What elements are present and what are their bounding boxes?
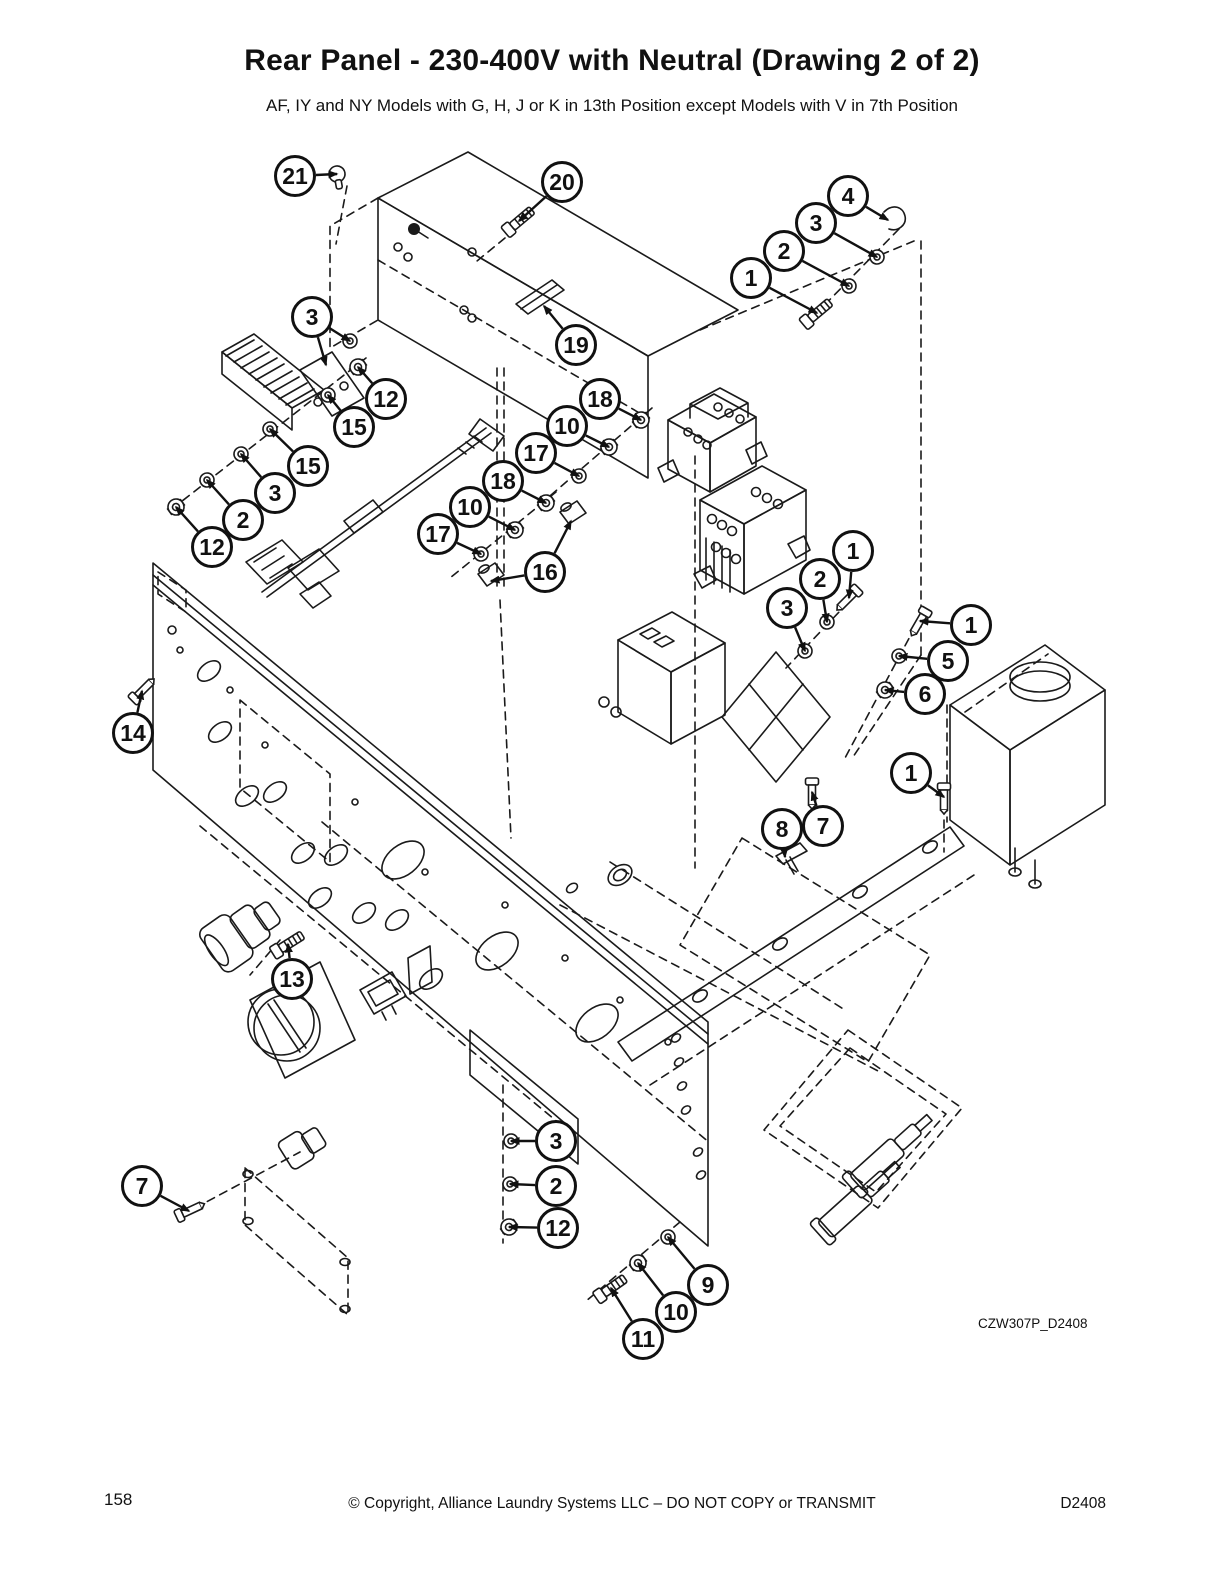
rotary-switch [248, 962, 355, 1078]
wire-harness [246, 419, 504, 608]
part-screw [128, 674, 159, 705]
access-plate [722, 652, 830, 782]
doc-code: D2408 [1060, 1495, 1106, 1513]
circuit-breaker [599, 612, 725, 744]
retainer-clip [776, 843, 807, 874]
projection-lines-mid [450, 368, 695, 868]
support-rail [618, 827, 974, 1085]
diagram-code: CZW307P_D2408 [978, 1316, 1088, 1331]
cable-gland-lower [277, 1121, 330, 1170]
part-screw [832, 584, 863, 615]
fastener-lines-right [786, 592, 944, 852]
terminal-strip [222, 334, 364, 430]
part-screw [938, 783, 951, 814]
cable-gland-upper [196, 889, 289, 976]
interference-filter-box [947, 645, 1105, 888]
strain-relief-fittings [477, 501, 586, 586]
mounting-bracket [330, 152, 738, 478]
part-screw [174, 1198, 208, 1223]
exploded-diagram-art [0, 0, 1224, 1584]
projection-lines-top [336, 186, 921, 757]
rear-panel [153, 563, 708, 1246]
cover-plate-dashed [243, 1168, 350, 1315]
rocker-switch [360, 972, 406, 1020]
part-screw-head [328, 165, 348, 190]
contactor-block [694, 466, 810, 594]
connector-assemblies [809, 1106, 939, 1246]
transformer-block [658, 388, 767, 492]
copyright-text: © Copyright, Alliance Laundry Systems LL… [0, 1495, 1224, 1513]
spacer-part [516, 280, 564, 314]
bottom-dashed-panel [764, 1030, 962, 1208]
